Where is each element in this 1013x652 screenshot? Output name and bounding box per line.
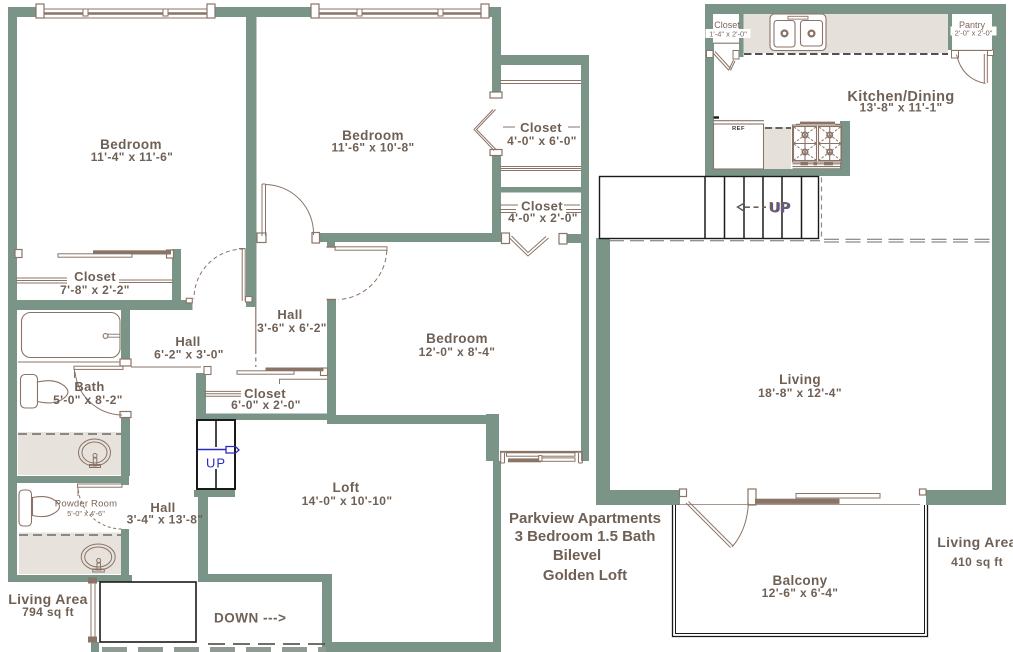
- svg-text:Powder Room: Powder Room: [55, 499, 117, 510]
- svg-text:Bedroom: Bedroom: [426, 331, 488, 346]
- svg-text:5'-0" x 8'-2": 5'-0" x 8'-2": [53, 393, 123, 407]
- svg-text:Closet: Closet: [520, 120, 562, 135]
- svg-text:UP: UP: [769, 200, 790, 216]
- svg-text:Loft: Loft: [333, 480, 360, 495]
- svg-text:Parkview Apartments: Parkview Apartments: [509, 510, 661, 527]
- svg-text:Golden Loft: Golden Loft: [543, 567, 627, 584]
- svg-text:11'-4" x 11'-6": 11'-4" x 11'-6": [91, 150, 173, 164]
- svg-text:6'-2" x 3'-0": 6'-2" x 3'-0": [154, 348, 224, 362]
- svg-text:3'-4" x 13'-8": 3'-4" x 13'-8": [127, 513, 204, 527]
- svg-text:Bilevel: Bilevel: [553, 547, 601, 564]
- svg-text:DOWN --->: DOWN --->: [214, 611, 286, 626]
- svg-text:13'-8" x 11'-1": 13'-8" x 11'-1": [859, 101, 942, 115]
- svg-text:1'-4" x 2'-0": 1'-4" x 2'-0": [709, 30, 747, 39]
- svg-text:3 Bedroom 1.5 Bath: 3 Bedroom 1.5 Bath: [515, 528, 656, 545]
- svg-text:794 sq ft: 794 sq ft: [22, 605, 74, 619]
- svg-text:Closet: Closet: [714, 20, 740, 30]
- svg-text:2'-0" x 2'-0": 2'-0" x 2'-0": [955, 29, 993, 38]
- svg-text:12'-0" x 8'-4": 12'-0" x 8'-4": [419, 345, 496, 359]
- svg-text:410 sq ft: 410 sq ft: [951, 555, 1003, 569]
- svg-text:Closet: Closet: [74, 269, 116, 284]
- svg-text:12'-6" x 6'-4": 12'-6" x 6'-4": [762, 586, 839, 600]
- svg-text:Living: Living: [779, 372, 821, 387]
- svg-text:REF: REF: [732, 126, 745, 132]
- svg-text:5'-0" x 4'-6": 5'-0" x 4'-6": [67, 509, 105, 518]
- svg-text:4'-0" x 6'-0": 4'-0" x 6'-0": [507, 134, 577, 148]
- svg-text:Living Area: Living Area: [937, 534, 1013, 550]
- svg-text:3'-6" x 6'-2": 3'-6" x 6'-2": [257, 321, 327, 335]
- svg-text:18'-8" x 12'-4": 18'-8" x 12'-4": [758, 386, 842, 400]
- svg-text:6'-0" x 2'-0": 6'-0" x 2'-0": [231, 398, 301, 412]
- svg-text:14'-0" x 10'-10": 14'-0" x 10'-10": [302, 494, 393, 508]
- svg-text:Bath: Bath: [74, 379, 104, 394]
- svg-text:UP: UP: [206, 456, 226, 471]
- svg-text:7'-8" x 2'-2": 7'-8" x 2'-2": [60, 283, 130, 297]
- svg-text:4'-0" x 2'-0": 4'-0" x 2'-0": [508, 211, 578, 225]
- svg-text:Hall: Hall: [277, 307, 302, 322]
- svg-text:11'-6" x 10'-8": 11'-6" x 10'-8": [331, 141, 414, 155]
